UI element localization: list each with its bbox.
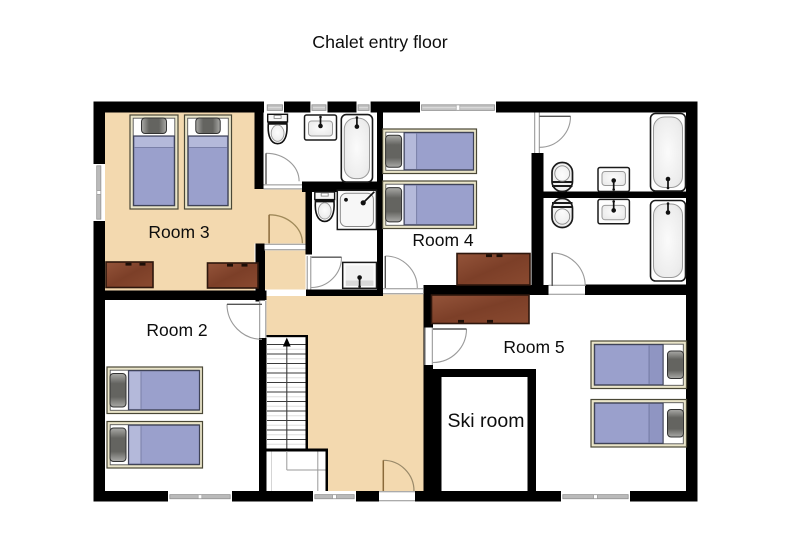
svg-text:Room 4: Room 4 [412, 230, 474, 250]
svg-text:Room 2: Room 2 [146, 320, 207, 340]
svg-text:Ski room: Ski room [448, 410, 525, 432]
svg-text:Room 3: Room 3 [148, 222, 209, 242]
svg-text:Chalet entry floor: Chalet entry floor [312, 32, 447, 52]
svg-text:Room 5: Room 5 [503, 337, 564, 357]
